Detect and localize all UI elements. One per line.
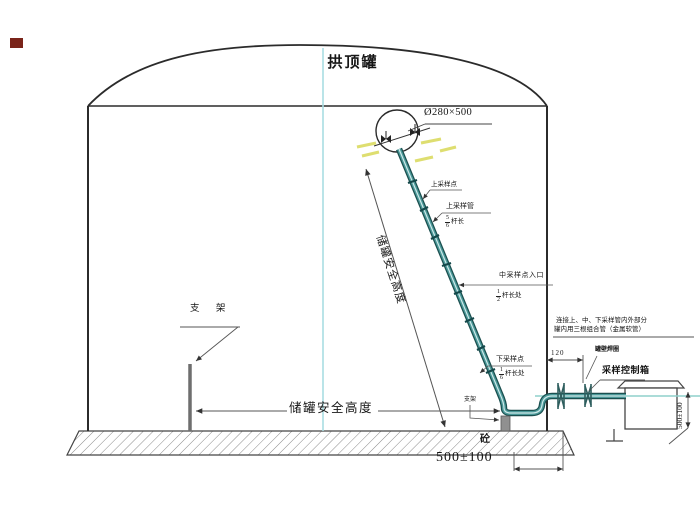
tank-sampling-diagram: 拱顶罐 Ø280×500 上采样点 上采样管 56 杆长 中采样点入口 12 杆… [0, 0, 700, 525]
safe-height-horizontal-label: 储罐安全高度 [289, 402, 373, 415]
middle-sampling-inlet-label: 中采样点入口 [499, 272, 544, 279]
diagram-title: 拱顶罐 [320, 56, 386, 71]
note-line-1: 连接上、中、下采样管内外部分 [556, 318, 647, 325]
support-post [180, 327, 240, 431]
wall-ring-label: 罐壁焊圈 [595, 347, 619, 353]
upper-rod-length-fraction: 56 杆长 [445, 215, 464, 229]
control-box [606, 381, 684, 441]
pipe-support-label: 支架 [464, 397, 476, 403]
box-height-dimension: 500±100 [676, 402, 684, 429]
middle-rod-length-fraction: 12 杆长处 [496, 289, 522, 303]
support-label: 支 架 [190, 305, 232, 315]
upper-sampling-pipe-label: 上采样管 [446, 203, 474, 210]
corner-color-mark [10, 38, 23, 48]
control-box-label: 采样控制箱 [602, 366, 650, 375]
upper-sampling-point-label: 上采样点 [431, 182, 457, 189]
tank-outline [88, 45, 547, 431]
concrete-foundation [67, 431, 574, 455]
bottom-dimension: 500±100 [436, 451, 493, 465]
nozzle-dimension-label: Ø280×500 [424, 108, 472, 119]
lower-sampling-point-label: 下采样点 [496, 356, 524, 363]
wall-offset-dimension: 120 [551, 350, 565, 357]
lower-rod-length-fraction: 16 杆长处 [499, 367, 525, 381]
drawing-canvas [0, 0, 700, 525]
dome-roof-arc [88, 45, 547, 106]
note-line-2: 罐内用三根组合管（金属软管） [554, 327, 645, 334]
concrete-label: 砼 [480, 435, 490, 445]
